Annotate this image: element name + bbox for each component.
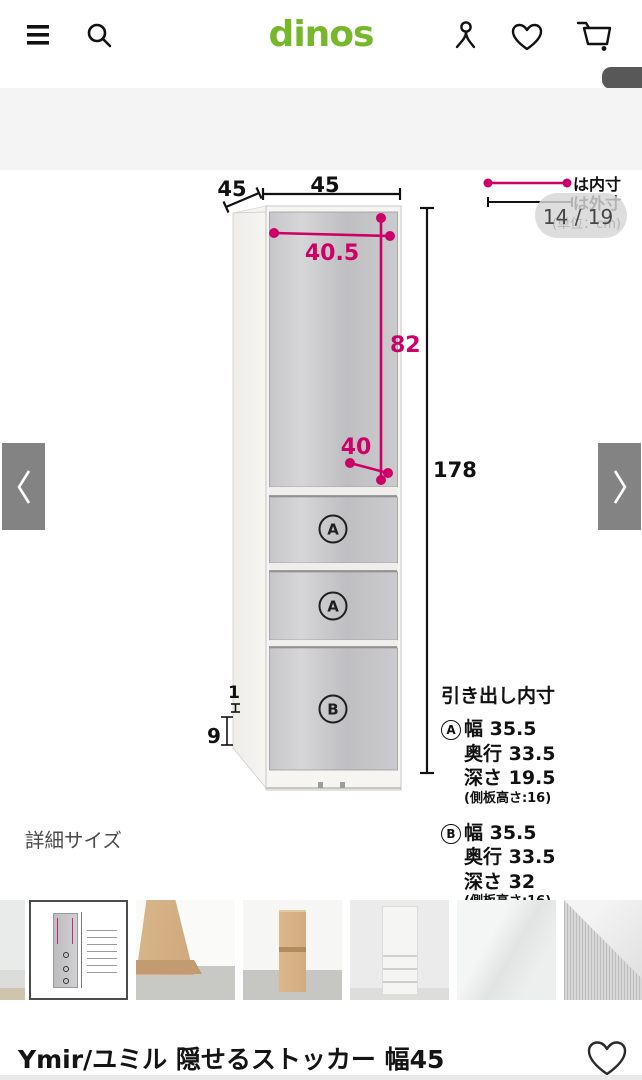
spec-a-depth: 奥行 33.5 — [441, 742, 641, 767]
dim-height-label: 178 — [433, 458, 477, 482]
specs-title: 引き出し内寸 — [441, 681, 641, 708]
dim-depth-label: 45 — [217, 177, 246, 201]
dim-inner-height-label: 82 — [390, 333, 421, 358]
account-icon[interactable] — [451, 21, 479, 49]
thumbnail-white-cabinet-photo[interactable] — [350, 900, 449, 1000]
wishlist-heart-icon[interactable] — [511, 23, 543, 51]
spec-b-badge: B — [441, 824, 461, 844]
heart-outline-icon — [586, 1040, 628, 1078]
drawer-a1-letter: A — [327, 521, 339, 539]
dim-inner-depth-label: 40 — [341, 435, 372, 460]
thumbnail-photo-partial[interactable] — [0, 900, 25, 1000]
dinos-product-page: dinos ー/隙間収納 > Ymir/ユミル 隠せるストッカー 幅45奥行45… — [0, 0, 642, 1080]
chevron-left-icon — [14, 468, 34, 506]
cabinet-drawing — [233, 206, 401, 790]
spec-b-drawer-depth: 深さ 32 — [441, 870, 641, 895]
floating-tab-partial[interactable] — [602, 67, 642, 89]
bottom-divider — [0, 1075, 642, 1080]
cart-icon[interactable] — [576, 20, 614, 52]
thumbnail-size-diagram-selected[interactable] — [29, 900, 128, 1000]
carousel-next-button[interactable] — [598, 443, 641, 530]
breadcrumb: ー/隙間収納 > Ymir/ユミル 隠せるストッカー 幅45奥行45cm高さ17… — [0, 88, 642, 170]
spec-a-width: A幅 35.5 — [441, 717, 641, 742]
spec-a-drawer-depth: 深さ 19.5 — [441, 766, 641, 791]
dim-inner-width-label: 40.5 — [305, 241, 359, 266]
page-badge: 14 / 19 — [543, 205, 613, 229]
legend-inner-label: は内寸 — [573, 175, 621, 194]
dinos-logo[interactable]: dinos — [0, 14, 642, 55]
thumbnail-wood-corner-photo[interactable] — [136, 900, 235, 1000]
product-title: Ymir/ユミル 隠せるストッカー 幅45 — [18, 1040, 444, 1076]
section-title: 詳細サイズ — [25, 824, 122, 853]
drawer-specs: 引き出し内寸 A幅 35.5 奥行 33.5 深さ 19.5 (側板高さ:16)… — [441, 681, 641, 909]
dim-width-label: 45 — [310, 173, 339, 197]
spec-b-depth: 奥行 33.5 — [441, 845, 641, 870]
header: dinos — [0, 0, 642, 88]
main-product-image[interactable]: A A B 45 45 178 1 9 — [0, 170, 642, 800]
thumbnail-white-gloss-photo[interactable] — [457, 900, 556, 1000]
favorite-button[interactable] — [586, 1040, 628, 1078]
dim-toekick-label: 1 — [228, 683, 240, 703]
spec-b-width: B幅 35.5 — [441, 821, 641, 846]
carousel-prev-button[interactable] — [2, 443, 45, 530]
chevron-right-icon — [610, 468, 630, 506]
thumbnail-beige-cabinet-photo[interactable] — [243, 900, 342, 1000]
spec-a-note: (側板高さ:16) — [441, 791, 641, 806]
drawer-a2-letter: A — [327, 598, 339, 616]
dim-base-label: 9 — [207, 724, 221, 748]
spec-a-badge: A — [441, 720, 461, 740]
thumbnail-gray-texture-photo[interactable] — [564, 900, 642, 1000]
drawer-b-letter: B — [327, 701, 338, 719]
